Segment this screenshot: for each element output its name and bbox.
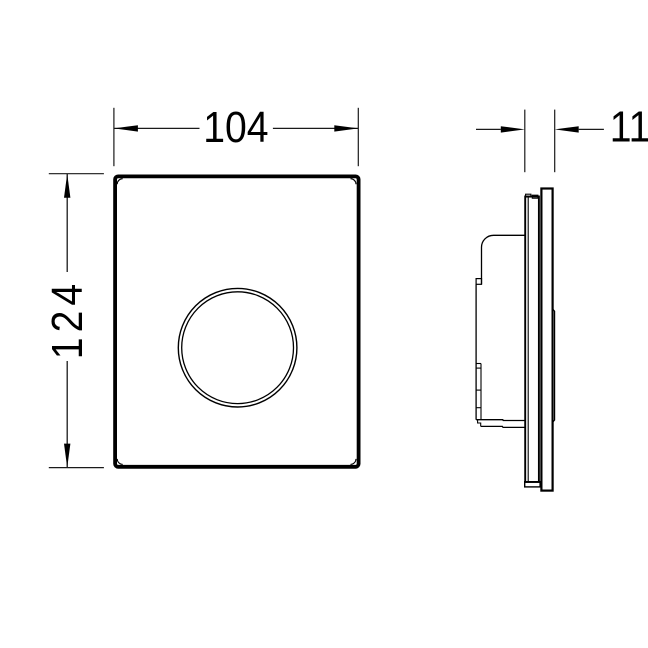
svg-text:124: 124 xyxy=(43,279,91,359)
svg-text:104: 104 xyxy=(203,103,268,151)
svg-text:11: 11 xyxy=(610,103,648,151)
